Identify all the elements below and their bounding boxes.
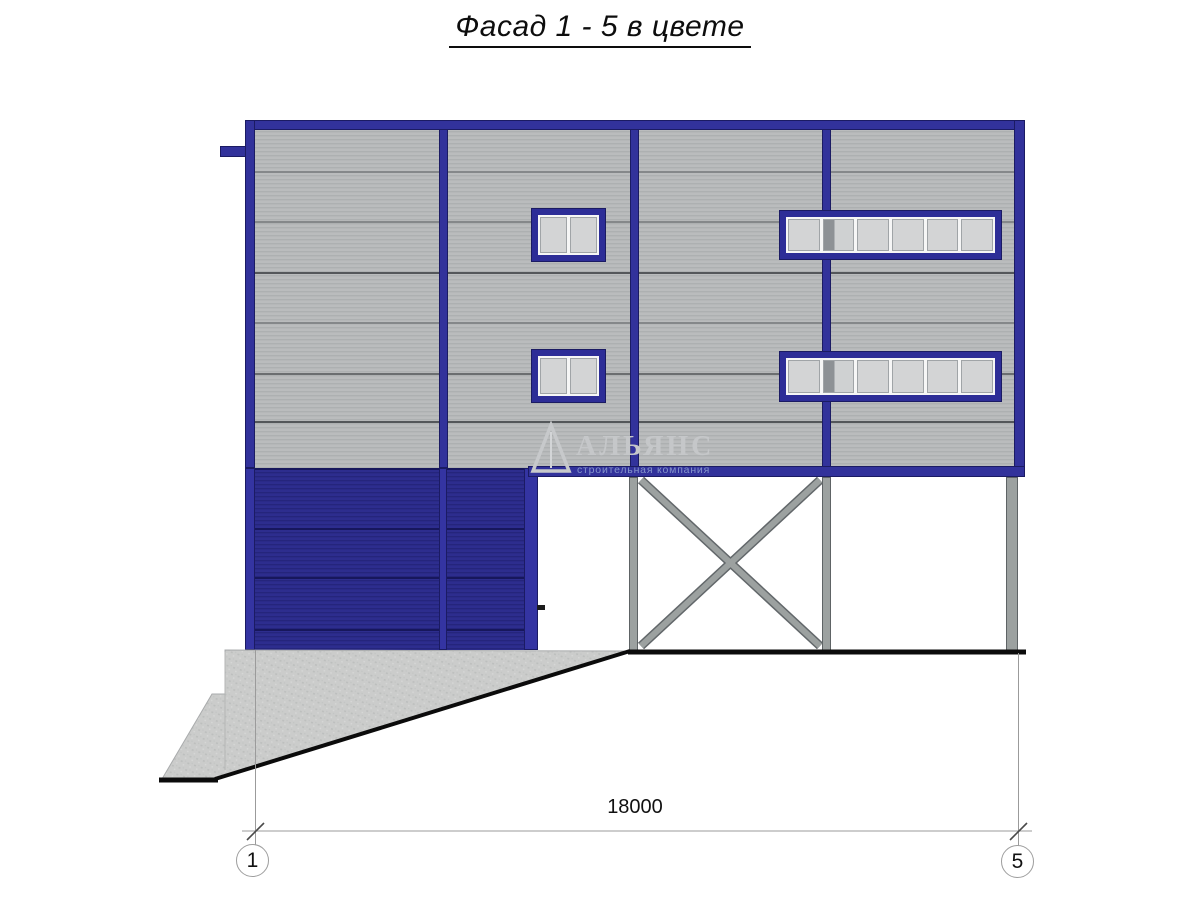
axis-marker-5-label: 5 — [1012, 850, 1024, 874]
door-joint-line — [255, 629, 538, 631]
window-pane — [927, 219, 959, 251]
concrete-ramp — [162, 650, 630, 779]
window-pane — [540, 217, 567, 253]
dimension-tick-right — [1010, 823, 1027, 840]
garage-door-panels — [255, 468, 538, 650]
facade-top-band — [245, 120, 1025, 130]
facade-mullion-4 — [822, 129, 831, 468]
window-ribbon-upper — [779, 210, 1002, 260]
window-small-upper — [531, 208, 606, 262]
axis-marker-1: 1 — [236, 844, 269, 877]
window-pane — [857, 219, 889, 251]
cross-bracing — [641, 480, 820, 646]
door-joint-line — [255, 577, 538, 579]
window-frame-inner — [786, 217, 995, 253]
window-pane-shaded — [823, 360, 855, 393]
window-pane-shaded — [823, 219, 855, 251]
gutter-stub — [220, 146, 248, 157]
garage-frame-right — [524, 468, 538, 650]
dimension-tick-left — [247, 823, 264, 840]
dimension-value: 18000 — [540, 796, 730, 819]
facade-bottom-band — [528, 466, 1025, 477]
window-pane — [788, 360, 820, 393]
axis-marker-1-label: 1 — [247, 849, 259, 873]
facade-right-column — [1014, 120, 1025, 477]
window-pane — [892, 360, 924, 393]
facade-left-column — [245, 120, 255, 468]
garage-frame-left — [245, 468, 255, 650]
window-pane — [927, 360, 959, 393]
facade-drawing: Фасад 1 - 5 в цвете — [0, 0, 1200, 900]
title-row: Фасад 1 - 5 в цвете — [0, 10, 1200, 48]
page-title: Фасад 1 - 5 в цвете — [449, 10, 750, 48]
window-frame-inner — [786, 358, 995, 395]
axis-marker-5: 5 — [1001, 845, 1034, 878]
steel-column-2 — [822, 477, 831, 652]
window-pane — [892, 219, 924, 251]
window-pane — [788, 219, 820, 251]
window-frame-inner — [538, 356, 599, 396]
window-pane — [857, 360, 889, 393]
window-pane — [570, 217, 597, 253]
facade-mullion-3 — [630, 129, 639, 468]
door-handle — [537, 605, 545, 610]
steel-column-3 — [1006, 477, 1018, 652]
window-pane — [570, 358, 597, 394]
window-small-lower — [531, 349, 606, 403]
window-pane — [961, 360, 993, 393]
garage-mullion — [439, 468, 447, 650]
window-ribbon-lower — [779, 351, 1002, 402]
steel-column-1 — [629, 477, 638, 652]
window-frame-inner — [538, 215, 599, 255]
ground-slope-line — [215, 651, 630, 779]
door-joint-line — [255, 528, 538, 530]
window-pane — [961, 219, 993, 251]
facade-mullion-2 — [439, 129, 448, 468]
window-pane — [540, 358, 567, 394]
